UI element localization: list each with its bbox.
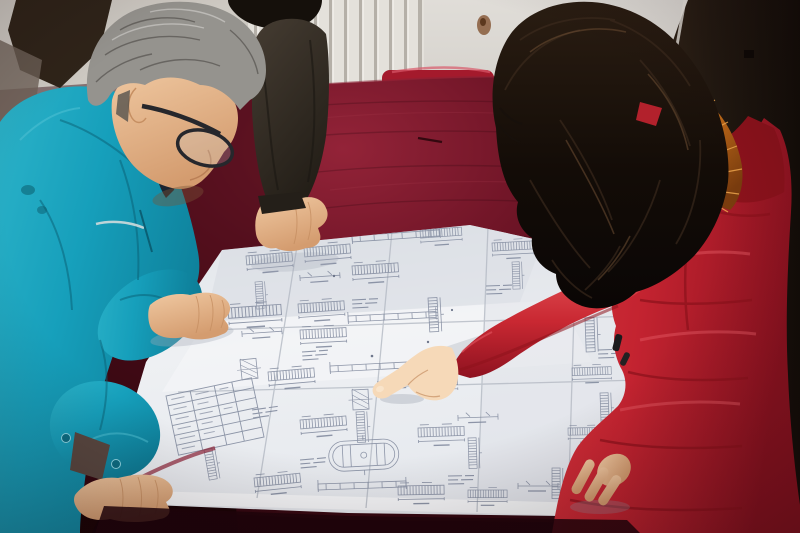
photo-frame bbox=[0, 0, 800, 533]
photo-blueprint-review bbox=[0, 0, 800, 533]
vignette bbox=[0, 0, 800, 533]
